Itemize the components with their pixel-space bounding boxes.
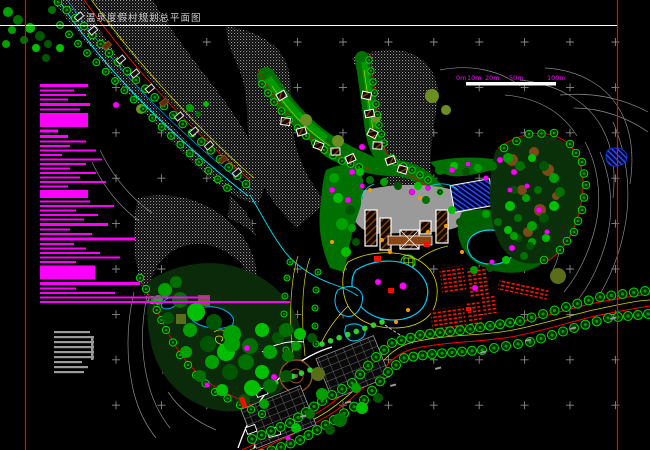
- flower-icon: [536, 207, 542, 213]
- note-line: [54, 336, 94, 338]
- tree-icon: [316, 388, 328, 400]
- legend-bar: [40, 243, 74, 245]
- tree-icon: [294, 328, 306, 340]
- tree-icon: [180, 346, 192, 358]
- tree-icon: [244, 380, 260, 396]
- tree-icon: [488, 324, 491, 327]
- tree-icon: [566, 240, 569, 243]
- tree-icon: [636, 313, 639, 316]
- tree-icon: [263, 379, 277, 393]
- tree-icon: [3, 7, 13, 17]
- tree-icon: [498, 323, 501, 326]
- grid-cross: [157, 174, 165, 182]
- grid-cross: [430, 38, 438, 46]
- circle-shape: [425, 89, 439, 103]
- tree-icon: [505, 201, 515, 211]
- tree-icon: [142, 108, 144, 110]
- tree-icon: [502, 256, 510, 264]
- tree-icon: [606, 316, 609, 319]
- tree-icon: [345, 332, 351, 338]
- scale-label: 100m: [547, 74, 566, 82]
- tree-icon: [487, 161, 497, 171]
- note-line: [54, 351, 94, 353]
- grid-cross: [112, 220, 120, 228]
- legend-bar: [40, 297, 210, 299]
- tree-icon: [238, 354, 254, 370]
- tree-icon: [314, 325, 316, 327]
- tree-icon: [375, 103, 377, 105]
- tree-icon: [370, 389, 373, 392]
- tree-icon: [564, 305, 567, 308]
- tree-icon: [179, 143, 181, 145]
- legend-bar: [40, 288, 76, 290]
- tree-icon: [48, 6, 56, 14]
- tree-icon: [492, 346, 495, 349]
- grid-cross: [611, 174, 619, 182]
- legend-bar: [40, 109, 80, 111]
- flower-icon: [509, 245, 515, 251]
- rect-shape: [465, 300, 482, 326]
- tree-icon: [427, 179, 429, 181]
- tree-icon: [428, 332, 431, 335]
- tree-icon: [280, 110, 282, 112]
- terrace-roadside: [498, 280, 549, 300]
- tree-icon: [200, 140, 203, 143]
- tree-icon: [486, 264, 494, 272]
- tree-icon: [288, 421, 291, 424]
- road-dash: [435, 366, 441, 369]
- tree-icon: [368, 59, 370, 61]
- tree-icon: [279, 445, 282, 448]
- tree-icon: [155, 309, 158, 312]
- tree-icon: [336, 335, 342, 341]
- tree-icon: [261, 83, 263, 85]
- scale-label: 0m: [456, 74, 466, 82]
- tree-icon: [42, 54, 50, 62]
- tree-icon: [430, 352, 433, 355]
- tree-icon: [226, 397, 229, 400]
- legend-bar: [40, 229, 70, 231]
- legend-bar: [40, 261, 76, 263]
- tree-icon: [99, 43, 102, 46]
- tree-icon: [373, 393, 383, 403]
- flower-icon: [466, 162, 471, 167]
- tree-icon: [411, 169, 413, 171]
- legend-bar: [40, 190, 88, 198]
- grid-cross: [294, 38, 302, 46]
- tree-icon: [206, 314, 222, 330]
- tree-icon: [516, 342, 519, 345]
- legend-bar: [40, 172, 96, 174]
- tree-icon: [528, 154, 536, 162]
- scale-label: 20m: [485, 74, 500, 82]
- tree-icon: [626, 314, 629, 317]
- grid-cross: [112, 265, 120, 273]
- tree-icon: [145, 288, 148, 291]
- flower-icon: [426, 186, 431, 191]
- tree-icon: [20, 36, 28, 44]
- grid-cross: [611, 356, 619, 364]
- tree-icon: [186, 104, 194, 112]
- accent-dot: [460, 250, 464, 254]
- legend-bar: [40, 141, 86, 143]
- tree-icon: [328, 338, 334, 344]
- tree-icon: [494, 218, 502, 226]
- legend-bar: [40, 282, 140, 285]
- tree-icon: [172, 114, 175, 117]
- tree-icon: [255, 323, 269, 337]
- tree-icon: [394, 363, 397, 366]
- legend-bar: [40, 135, 68, 138]
- tree-icon: [341, 160, 343, 162]
- tree-icon: [291, 341, 301, 351]
- legend-bar: [40, 103, 90, 106]
- tree-icon: [356, 402, 368, 414]
- tree-icon: [315, 289, 317, 291]
- tree-icon: [336, 218, 348, 230]
- grid-cross: [112, 310, 120, 318]
- tree-icon: [460, 350, 463, 353]
- tree-icon: [289, 261, 291, 263]
- tree-icon: [448, 206, 456, 214]
- tree-icon: [200, 336, 216, 352]
- tree-icon: [553, 309, 556, 312]
- tree-icon: [333, 193, 343, 203]
- tree-icon: [520, 252, 528, 260]
- grid-cross: [521, 401, 529, 409]
- tree-icon: [358, 166, 360, 168]
- tree-icon: [307, 433, 310, 436]
- tree-icon: [325, 425, 335, 435]
- tree-icon: [307, 333, 317, 343]
- accent-dot: [406, 308, 410, 312]
- tree-icon: [503, 153, 513, 163]
- tree-icon: [470, 349, 473, 352]
- tree-icon: [575, 152, 578, 155]
- tree-icon: [510, 232, 518, 240]
- grid-cross: [339, 38, 347, 46]
- tree-icon: [194, 370, 206, 382]
- tree-icon: [400, 339, 403, 342]
- tree-icon: [95, 61, 97, 63]
- tree-icon: [68, 33, 70, 35]
- tree-icon: [273, 101, 275, 103]
- red-structure: [388, 288, 394, 293]
- villa-symbol: [373, 142, 382, 149]
- tree-icon: [329, 173, 339, 183]
- tree-icon: [376, 113, 378, 115]
- tree-icon: [373, 92, 375, 94]
- legend-bar: [40, 205, 114, 207]
- tree-icon: [366, 176, 374, 184]
- tree-icon: [259, 399, 269, 409]
- tree-icon: [598, 295, 601, 298]
- tree-icon: [418, 333, 421, 336]
- tree-icon: [280, 370, 292, 382]
- tree-icon: [352, 238, 360, 246]
- grid-cross: [430, 401, 438, 409]
- flower-icon: [409, 189, 415, 195]
- grid-cross: [611, 83, 619, 91]
- tree-icon: [621, 292, 624, 295]
- flower-icon: [375, 279, 381, 285]
- tree-icon: [139, 277, 142, 280]
- tree-icon: [550, 333, 553, 336]
- tree-icon: [56, 44, 64, 52]
- tree-icon: [577, 220, 580, 223]
- tree-icon: [646, 312, 649, 315]
- legend-bar: [40, 177, 80, 179]
- legend-bar: [40, 201, 90, 203]
- tree-icon: [412, 355, 415, 358]
- tree-icon: [2, 40, 10, 48]
- tree-icon: [299, 370, 305, 376]
- tree-icon: [378, 380, 381, 383]
- note-bracket: [91, 336, 94, 360]
- tree-icon: [314, 307, 316, 309]
- note-line: [54, 346, 94, 348]
- grid-cross: [112, 356, 120, 364]
- tree-icon: [323, 149, 325, 151]
- tree-icon: [153, 96, 156, 99]
- legend-bar: [40, 257, 120, 259]
- legend-bar: [40, 130, 58, 133]
- tree-icon: [35, 31, 45, 41]
- tree-icon: [160, 126, 162, 128]
- tree-icon: [289, 442, 292, 445]
- grid-cross: [611, 401, 619, 409]
- note-line: [54, 341, 94, 343]
- tree-icon: [576, 302, 579, 305]
- legend-bar: [40, 292, 115, 294]
- tree-icon: [587, 299, 590, 302]
- tree-icon: [216, 178, 218, 180]
- tree-icon: [402, 356, 405, 359]
- flower-icon: [360, 184, 365, 189]
- tree-icon: [456, 218, 464, 226]
- tree-icon: [340, 387, 343, 390]
- accent-dot: [380, 238, 384, 242]
- tree-icon: [595, 320, 598, 323]
- tree-icon: [279, 323, 293, 337]
- tree-icon: [284, 295, 286, 297]
- grid-cross: [475, 38, 483, 46]
- tree-icon: [260, 433, 263, 436]
- tree-icon: [57, 1, 60, 4]
- grid-cross: [203, 38, 211, 46]
- tree-icon: [135, 79, 138, 82]
- tree-icon: [503, 147, 506, 150]
- scale-bar-rect: [466, 82, 556, 86]
- path-shape: [574, 108, 648, 132]
- legend-bar: [40, 84, 88, 87]
- note-line: [54, 361, 82, 363]
- tree-icon: [514, 214, 522, 222]
- tree-icon: [526, 242, 534, 250]
- tree-icon: [583, 196, 586, 199]
- legend-bar: [40, 159, 102, 161]
- legend-bar: [40, 94, 86, 96]
- grid-cross: [157, 401, 165, 409]
- tree-icon: [366, 364, 369, 367]
- flower-icon: [286, 436, 291, 441]
- tree-icon: [123, 89, 125, 91]
- grid-cross: [430, 265, 438, 273]
- tree-icon: [362, 398, 365, 401]
- tree-icon: [528, 133, 531, 136]
- grid-cross: [384, 38, 392, 46]
- tree-icon: [312, 405, 315, 408]
- tree-icon: [151, 299, 154, 302]
- legend-bar: [40, 301, 290, 303]
- tree-icon: [227, 166, 230, 169]
- tree-icon: [515, 140, 518, 143]
- flower-icon: [329, 187, 335, 193]
- tree-icon: [559, 249, 562, 252]
- scale-label: 50m: [509, 74, 524, 82]
- tree-icon: [162, 312, 174, 324]
- tree-icon: [458, 329, 461, 332]
- legend-bar: [40, 238, 135, 241]
- tree-icon: [414, 182, 422, 190]
- flower-icon: [205, 383, 210, 388]
- flower-icon: [484, 176, 489, 181]
- tree-icon: [530, 316, 533, 319]
- accent-dot: [330, 240, 334, 244]
- tree-icon: [522, 194, 530, 202]
- rect-shape: [439, 265, 466, 294]
- tree-icon: [283, 313, 285, 315]
- legend-bar: [40, 90, 74, 92]
- tree-icon: [317, 271, 319, 273]
- tree-icon: [540, 132, 543, 135]
- tree-icon: [372, 81, 374, 83]
- olive-square-2: [176, 314, 186, 324]
- accent-dot: [368, 188, 372, 192]
- note-line: [54, 371, 84, 373]
- tree-icon: [543, 259, 546, 262]
- drawing-title: 温泉度假村规划总平面图: [86, 13, 202, 24]
- tree-icon: [474, 164, 482, 172]
- path-shape: [560, 94, 648, 112]
- tree-icon: [282, 350, 294, 362]
- tree-icon: [132, 98, 134, 100]
- tree-icon: [542, 234, 550, 242]
- legend-bar: [40, 113, 88, 127]
- tree-icon: [242, 338, 258, 354]
- tree-icon: [581, 209, 584, 212]
- red-structure: [424, 242, 430, 247]
- tree-icon: [261, 413, 264, 416]
- tree-icon: [362, 325, 368, 331]
- tree-icon: [188, 152, 190, 154]
- tree-icon: [448, 330, 451, 333]
- tree-icon: [151, 117, 153, 119]
- grid-cross: [566, 83, 574, 91]
- tree-icon: [569, 143, 572, 146]
- tree-icon: [518, 319, 521, 322]
- legend-bar: [40, 233, 92, 235]
- tree-icon: [549, 201, 559, 211]
- tree-icon: [539, 337, 542, 340]
- tree-icon: [352, 405, 355, 408]
- tree-icon: [338, 180, 350, 192]
- grid-cross: [566, 265, 574, 273]
- tree-icon: [374, 355, 377, 358]
- tree-icon: [203, 101, 209, 107]
- flower-icon: [525, 184, 530, 189]
- tree-icon: [382, 348, 385, 351]
- accent-dot: [388, 250, 392, 254]
- tree-icon: [348, 224, 356, 232]
- tree-icon: [296, 416, 299, 419]
- red-structure: [374, 256, 381, 262]
- tree-icon: [170, 135, 172, 137]
- pondlet-ne: [606, 148, 627, 166]
- tree-icon: [44, 40, 52, 48]
- path-shape: [92, 162, 139, 221]
- swimming-pool: [450, 179, 494, 213]
- tree-icon: [267, 92, 269, 94]
- circle-shape: [441, 105, 451, 115]
- flower-icon: [349, 169, 355, 175]
- tree-icon: [263, 345, 277, 359]
- tree-icon: [527, 221, 537, 231]
- tree-icon: [183, 323, 197, 337]
- scale-label: 10m: [467, 74, 482, 82]
- tree-icon: [32, 44, 40, 52]
- rect-shape: [481, 295, 497, 315]
- grid-cross: [521, 356, 529, 364]
- legend-bar: [40, 248, 86, 250]
- grid-cross: [611, 38, 619, 46]
- tree-icon: [65, 9, 68, 12]
- legend-bar: [40, 214, 98, 216]
- note-line: [54, 366, 88, 368]
- tree-icon: [351, 383, 361, 393]
- villa-symbol: [281, 117, 291, 125]
- tree-icon: [539, 213, 549, 223]
- villa-symbol: [361, 91, 371, 100]
- tree-icon: [172, 292, 188, 308]
- tree-icon: [333, 413, 347, 427]
- site-plan-canvas: 0m10m20m50m100m: [0, 0, 650, 450]
- olive-blob: [550, 268, 566, 284]
- tree-icon: [214, 391, 217, 394]
- tree-icon: [330, 393, 333, 396]
- tree-icon: [324, 423, 327, 426]
- grid-cross: [611, 220, 619, 228]
- flower-icon: [508, 188, 513, 193]
- tree-icon: [435, 165, 445, 175]
- tree-icon: [319, 341, 325, 347]
- accent-dot: [444, 224, 448, 228]
- tree-icon: [165, 329, 168, 332]
- tree-icon: [170, 276, 182, 288]
- rect-shape: [365, 210, 377, 246]
- tree-icon: [549, 173, 559, 183]
- tree-icon: [305, 409, 315, 419]
- planting-terraces: [424, 261, 499, 331]
- tree-icon: [539, 161, 549, 171]
- tree-icon: [245, 183, 248, 186]
- legend-bar: [40, 150, 96, 152]
- note-line: [54, 356, 94, 358]
- tree-icon: [315, 343, 317, 345]
- tree-icon: [439, 191, 441, 193]
- road-dash: [390, 383, 396, 386]
- grid-cross: [157, 265, 165, 273]
